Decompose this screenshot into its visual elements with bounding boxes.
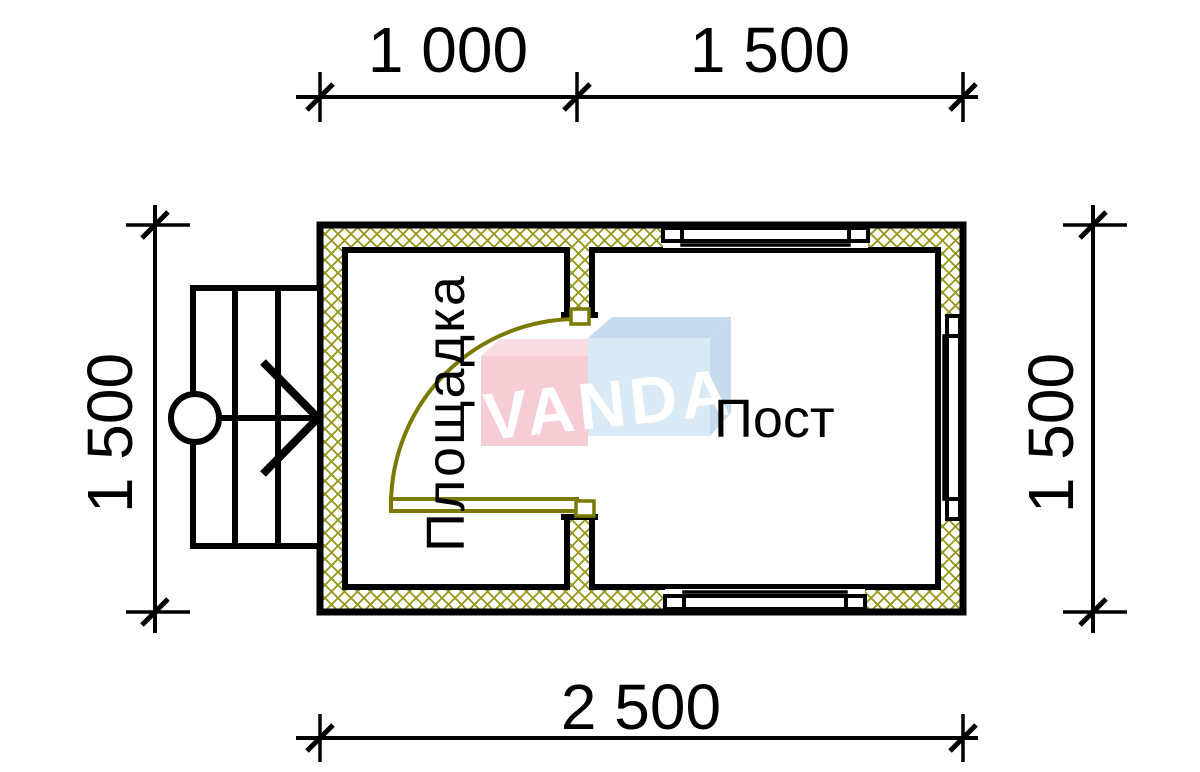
door-strike-block bbox=[571, 309, 589, 324]
dim-text-left: 1 500 bbox=[74, 353, 146, 513]
window-right bbox=[941, 316, 961, 519]
stairs bbox=[171, 288, 320, 546]
window-bottom bbox=[665, 589, 865, 609]
room-label-post: Пост bbox=[714, 389, 835, 449]
dim-text-top-left: 1 000 bbox=[368, 14, 528, 86]
room-label-playground: Площадка bbox=[416, 274, 476, 552]
door-hinge-block bbox=[576, 501, 594, 516]
floor-plan-drawing: VANDA 1 000 1 500 2 500 bbox=[0, 0, 1200, 772]
window-top bbox=[663, 228, 868, 248]
entry-arrow-origin-circle bbox=[171, 394, 219, 442]
logo-blue-top-face bbox=[588, 317, 731, 338]
dim-text-bottom: 2 500 bbox=[561, 671, 721, 743]
dim-text-top-right: 1 500 bbox=[690, 14, 850, 86]
dim-text-right: 1 500 bbox=[1015, 353, 1087, 513]
floor-plan-svg: VANDA 1 000 1 500 2 500 bbox=[0, 0, 1200, 772]
